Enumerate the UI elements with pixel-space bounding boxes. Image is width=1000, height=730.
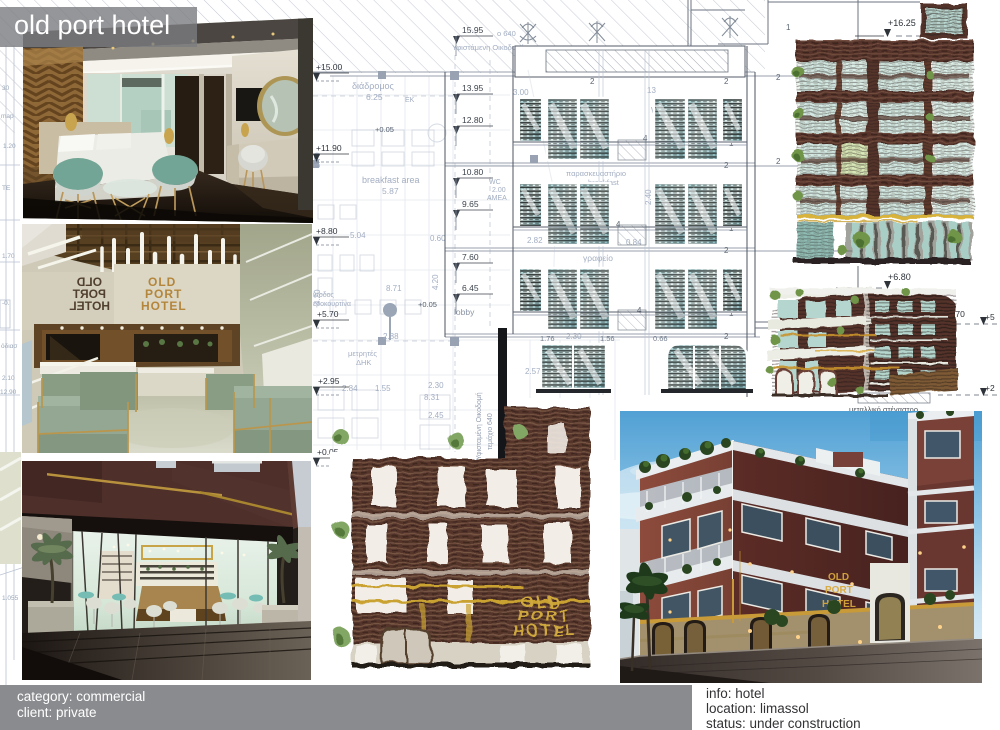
svg-text:PORT: PORT: [825, 585, 853, 596]
svg-text:OLD: OLD: [828, 572, 849, 583]
svg-text:HOTEL: HOTEL: [513, 623, 577, 640]
